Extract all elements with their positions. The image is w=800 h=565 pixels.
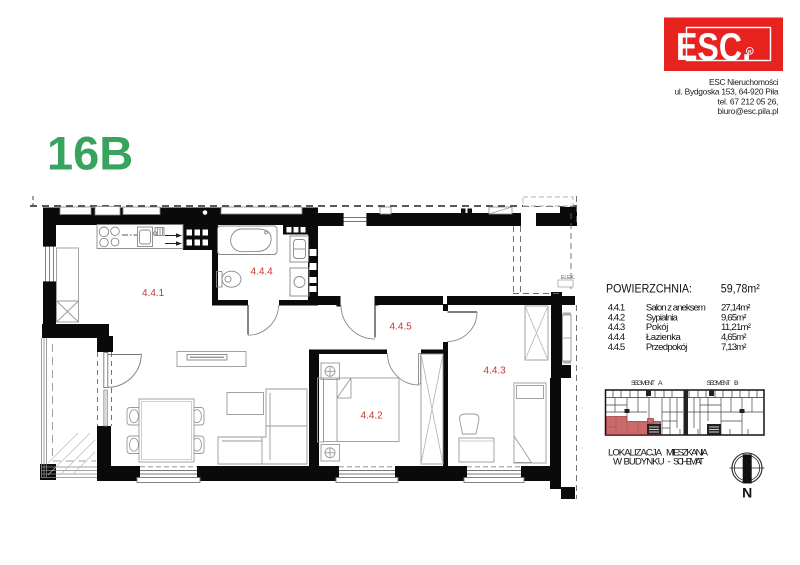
svg-text:4.4.5: 4.4.5 [608,342,626,353]
svg-text:16B: 16B [47,127,133,180]
svg-text:4.4.2: 4.4.2 [361,411,384,422]
svg-text:7,13m²: 7,13m² [721,342,747,353]
svg-text:Przedpokój: Przedpokój [646,342,688,353]
svg-text:POWIERZCHNIA:: POWIERZCHNIA: [606,282,692,296]
svg-text:W: W [613,456,623,467]
svg-text:N: N [742,484,752,500]
svg-text:ESC.: ESC. [676,26,751,69]
svg-text:SCHEMAT: SCHEMAT [673,456,704,467]
svg-text:4.4.3: 4.4.3 [484,366,507,377]
svg-text:R: R [748,49,752,55]
svg-text:BUDYNKU: BUDYNKU [624,456,665,467]
svg-text:ul. Bydgoska 153, 64-920 Piła: ul. Bydgoska 153, 64-920 Piła [675,87,779,97]
svg-text:B: B [734,380,739,387]
svg-text:biuro@esc.pila.pl: biuro@esc.pila.pl [718,106,779,116]
svg-text:59,78m²: 59,78m² [721,282,760,296]
svg-text:4.4.4: 4.4.4 [251,267,274,278]
svg-text:ELEK.: ELEK. [561,275,575,281]
svg-text:SEGMENT: SEGMENT [707,380,731,387]
svg-text:-: - [668,456,671,467]
svg-text:A: A [658,380,663,387]
svg-text:4.4.5: 4.4.5 [390,322,413,333]
svg-text:4.4.1: 4.4.1 [142,288,165,299]
svg-text:tel. 67 212 05 26,: tel. 67 212 05 26, [718,96,779,106]
svg-text:ESC Nieruchomości: ESC Nieruchomości [709,77,779,87]
svg-text:SEGMENT: SEGMENT [631,380,655,387]
